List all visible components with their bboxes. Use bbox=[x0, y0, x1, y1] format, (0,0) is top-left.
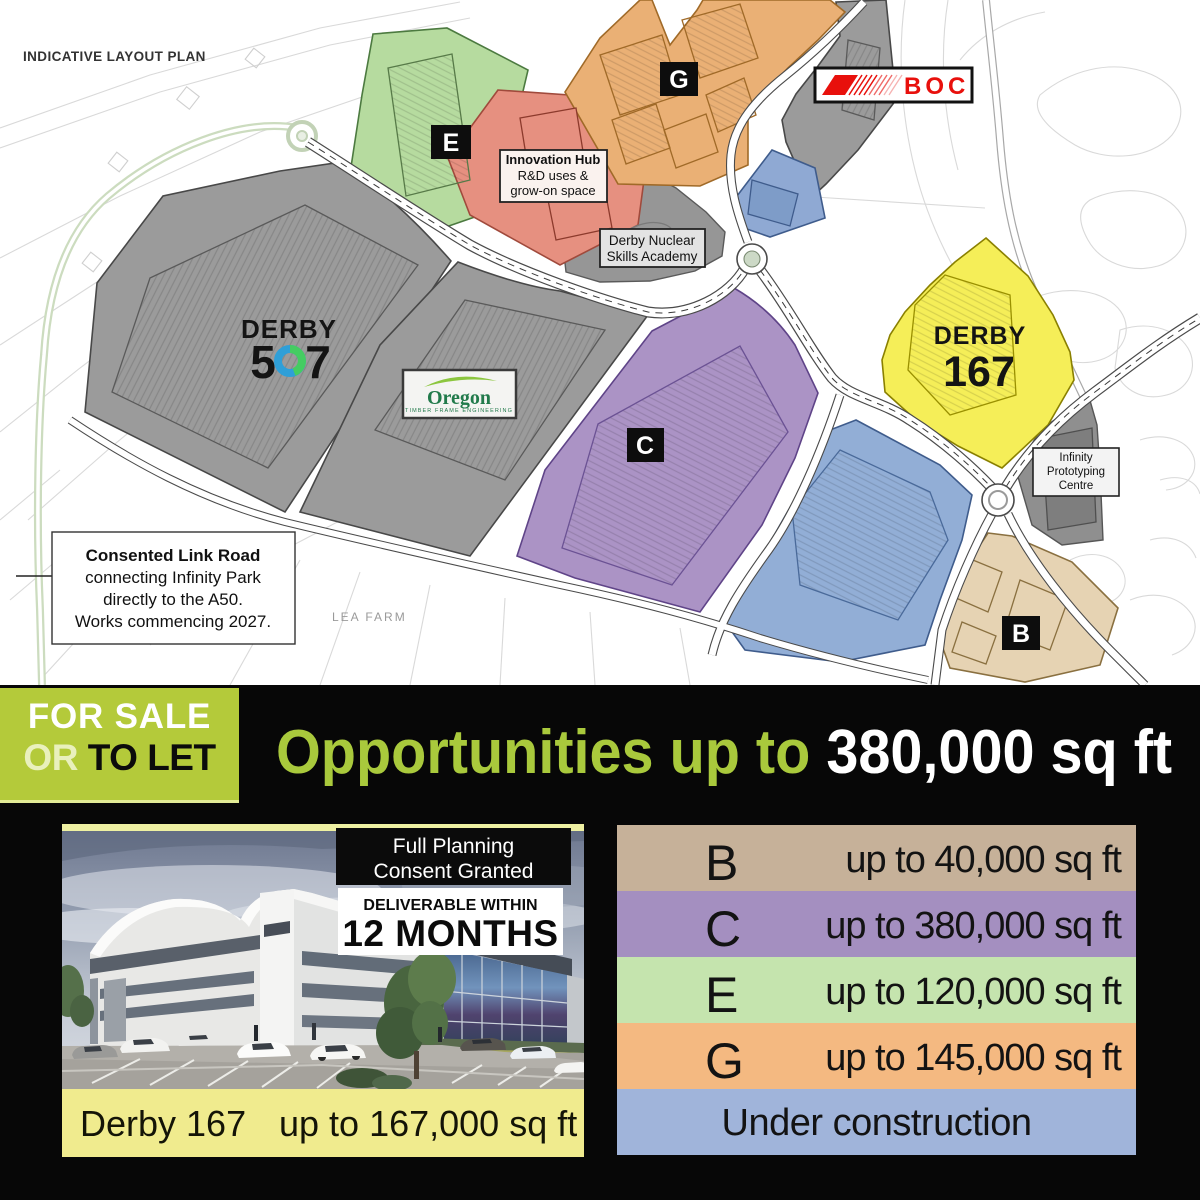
svg-text:LEA FARM: LEA FARM bbox=[332, 610, 407, 624]
svg-text:Works commencing 2027.: Works commencing 2027. bbox=[75, 612, 271, 631]
svg-text:Consented Link Road: Consented Link Road bbox=[86, 546, 261, 565]
svg-text:Prototyping: Prototyping bbox=[1047, 466, 1105, 478]
svg-text:BOC: BOC bbox=[904, 73, 969, 100]
svg-text:DERBY: DERBY bbox=[934, 322, 1027, 350]
svg-text:directly to the A50.: directly to the A50. bbox=[103, 590, 243, 609]
svg-text:G: G bbox=[669, 66, 688, 94]
svg-text:Infinity: Infinity bbox=[1059, 452, 1092, 464]
svg-text:Innovation Hub: Innovation Hub bbox=[506, 152, 601, 167]
svg-text:E: E bbox=[443, 129, 460, 157]
svg-text:INDICATIVE LAYOUT PLAN: INDICATIVE LAYOUT PLAN bbox=[23, 49, 206, 64]
svg-text:R&D uses &: R&D uses & bbox=[518, 168, 589, 183]
svg-text:Derby Nuclear: Derby Nuclear bbox=[609, 233, 696, 248]
svg-text:Skills Academy: Skills Academy bbox=[607, 249, 698, 264]
svg-text:B: B bbox=[1012, 620, 1030, 648]
svg-text:C: C bbox=[636, 432, 654, 460]
svg-text:connecting Infinity Park: connecting Infinity Park bbox=[85, 568, 261, 587]
svg-text:grow-on space: grow-on space bbox=[510, 183, 595, 198]
svg-text:167: 167 bbox=[943, 348, 1015, 396]
svg-text:TIMBER FRAME ENGINEERING: TIMBER FRAME ENGINEERING bbox=[405, 408, 513, 414]
svg-text:Oregon: Oregon bbox=[427, 387, 491, 409]
svg-text:Centre: Centre bbox=[1059, 480, 1094, 492]
svg-text:5: 5 bbox=[250, 336, 276, 388]
svg-text:7: 7 bbox=[305, 336, 331, 388]
